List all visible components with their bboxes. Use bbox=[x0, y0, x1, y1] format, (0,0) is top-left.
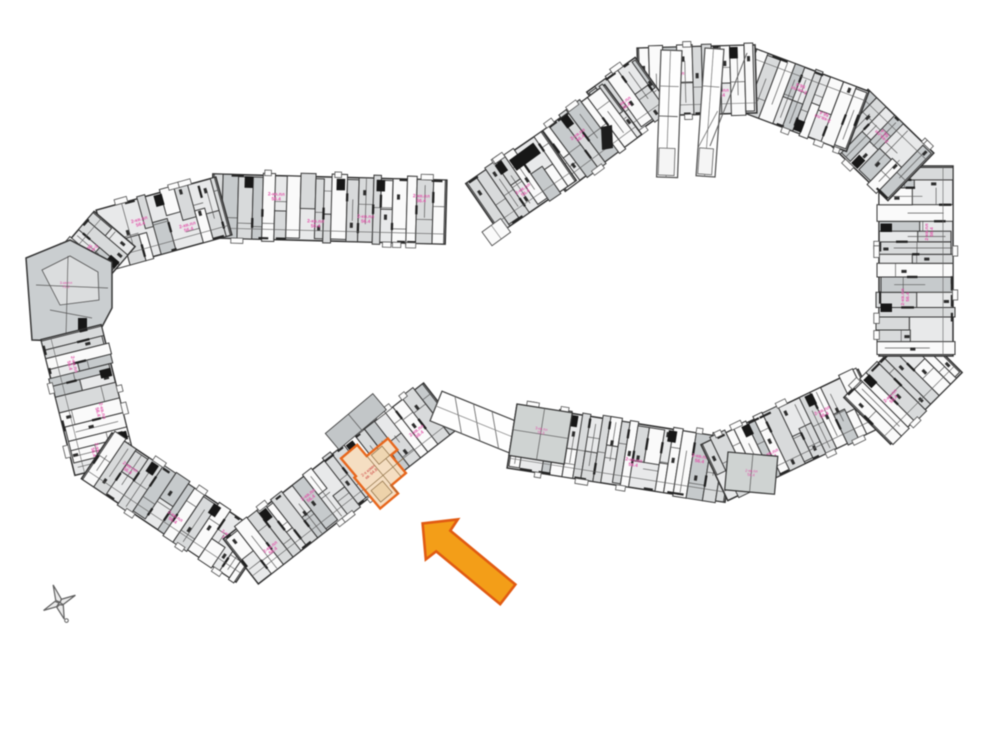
svg-text:56.4: 56.4 bbox=[929, 227, 935, 237]
svg-text:56.4: 56.4 bbox=[416, 198, 426, 204]
svg-text:56.4: 56.4 bbox=[271, 196, 281, 202]
svg-text:56.4: 56.4 bbox=[361, 219, 371, 225]
svg-text:56.4: 56.4 bbox=[905, 292, 911, 302]
svg-text:75.2: 75.2 bbox=[62, 285, 69, 289]
svg-text:56.4: 56.4 bbox=[747, 473, 755, 478]
svg-text:56.4: 56.4 bbox=[311, 223, 321, 229]
